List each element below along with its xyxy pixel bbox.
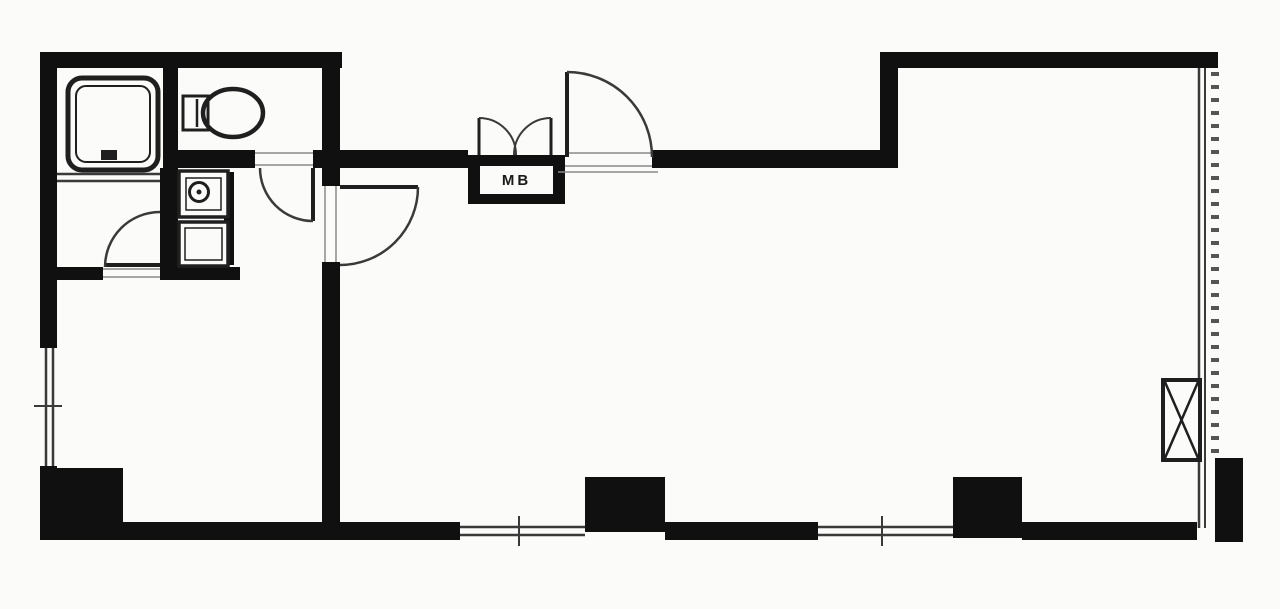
west-room-door-arc bbox=[340, 187, 418, 265]
meter-box-label: MB bbox=[480, 166, 553, 194]
wall-bottom-middle bbox=[665, 522, 818, 540]
washroom-door-arc bbox=[105, 212, 160, 267]
wall-washroom-east bbox=[160, 168, 178, 280]
entrance-door-arc bbox=[567, 72, 652, 157]
toilet-door-arc bbox=[260, 168, 313, 221]
wall-main-vertical-lower bbox=[322, 262, 340, 525]
wall-washroom-south bbox=[55, 267, 103, 280]
floor-plan-drawing bbox=[0, 0, 1280, 609]
wall-main-vertical-upper bbox=[322, 52, 340, 186]
washbasin-drain bbox=[197, 190, 202, 195]
toilet-bowl bbox=[203, 89, 263, 137]
wall-north-west-of-entrance bbox=[322, 150, 468, 168]
floor-plan: MB bbox=[0, 0, 1280, 609]
wall-bottom-right bbox=[1022, 522, 1197, 540]
wall-step-vertical bbox=[880, 52, 898, 168]
wall-left-upper bbox=[40, 52, 57, 348]
column-south-east bbox=[953, 477, 1022, 538]
wall-toilet-south-left bbox=[178, 150, 255, 168]
wall-bath-toilet-divider bbox=[163, 52, 178, 183]
meterbox-door-right-arc bbox=[514, 118, 551, 155]
wall-top-right bbox=[880, 52, 1218, 68]
column-south-center bbox=[585, 477, 665, 532]
wall-north-east-of-entrance bbox=[652, 150, 898, 168]
column-southeast-corner bbox=[1215, 458, 1243, 542]
wall-top-left bbox=[40, 52, 342, 68]
wall-niche-south bbox=[160, 267, 240, 280]
column-southwest bbox=[43, 468, 123, 538]
bathtub-drain bbox=[101, 150, 117, 160]
meterbox-door-left-arc bbox=[479, 118, 516, 155]
